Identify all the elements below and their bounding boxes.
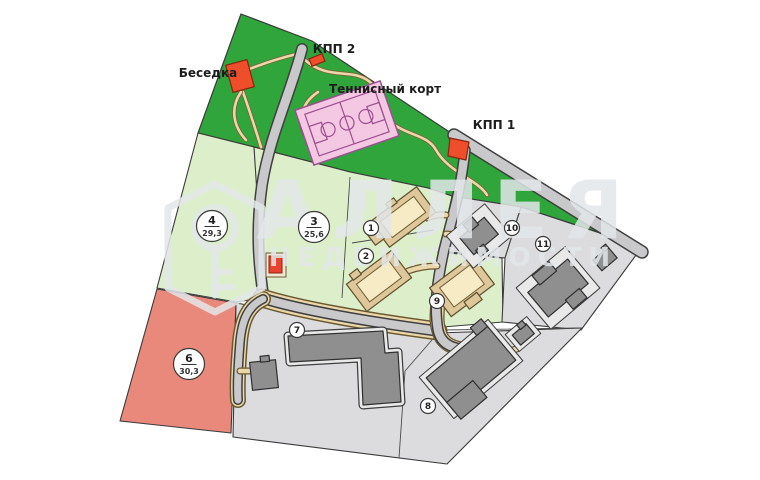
tennis-court-label: Теннисный корт: [329, 82, 441, 96]
site-plan-canvas: АЛЛЕЯ НЕДВИЖИМОСТИ 4 29,3 3 25,6 6 30,3 …: [0, 0, 760, 480]
plot-8-number: 8: [425, 402, 431, 412]
plot-10-number: 10: [506, 224, 519, 234]
checkpoint-1-structure: [448, 138, 469, 160]
plot-marker-8[interactable]: 8: [421, 399, 436, 414]
gazebo-label: Беседка: [179, 66, 237, 80]
checkpoint-1-label: КПП 1: [473, 118, 515, 132]
plot-marker-3[interactable]: 3 25,6: [299, 212, 330, 243]
plot-marker-9[interactable]: 9: [430, 294, 445, 309]
plot-marker-7[interactable]: 7: [290, 323, 305, 338]
plot-1-number: 1: [368, 224, 374, 234]
plot-9-number: 9: [434, 297, 440, 307]
plot-7-number: 7: [294, 326, 300, 336]
plot-2-number: 2: [363, 252, 369, 262]
plot-marker-10[interactable]: 10: [505, 221, 520, 236]
plot-marker-4[interactable]: 4 29,3: [197, 211, 228, 242]
plot-3-number: 3: [310, 215, 318, 228]
plot-marker-1[interactable]: 1: [364, 221, 379, 236]
checkpoint-2-label: КПП 2: [313, 42, 355, 56]
watermark-brand-sub: НЕДВИЖИМОСТИ: [269, 243, 617, 273]
plot-4-area: 29,3: [202, 229, 222, 238]
plot-6-number: 6: [185, 352, 193, 365]
plot-4-number: 4: [208, 214, 216, 227]
site-plan: АЛЛЕЯ НЕДВИЖИМОСТИ 4 29,3 3 25,6 6 30,3 …: [0, 0, 760, 480]
plot-11-number: 11: [537, 240, 550, 250]
plot-marker-6[interactable]: 6 30,3: [174, 349, 205, 380]
plot-marker-2[interactable]: 2: [359, 249, 374, 264]
plot-6-area: 30,3: [179, 367, 199, 376]
plot-3-area: 25,6: [304, 230, 324, 239]
plot-marker-11[interactable]: 11: [536, 237, 551, 252]
